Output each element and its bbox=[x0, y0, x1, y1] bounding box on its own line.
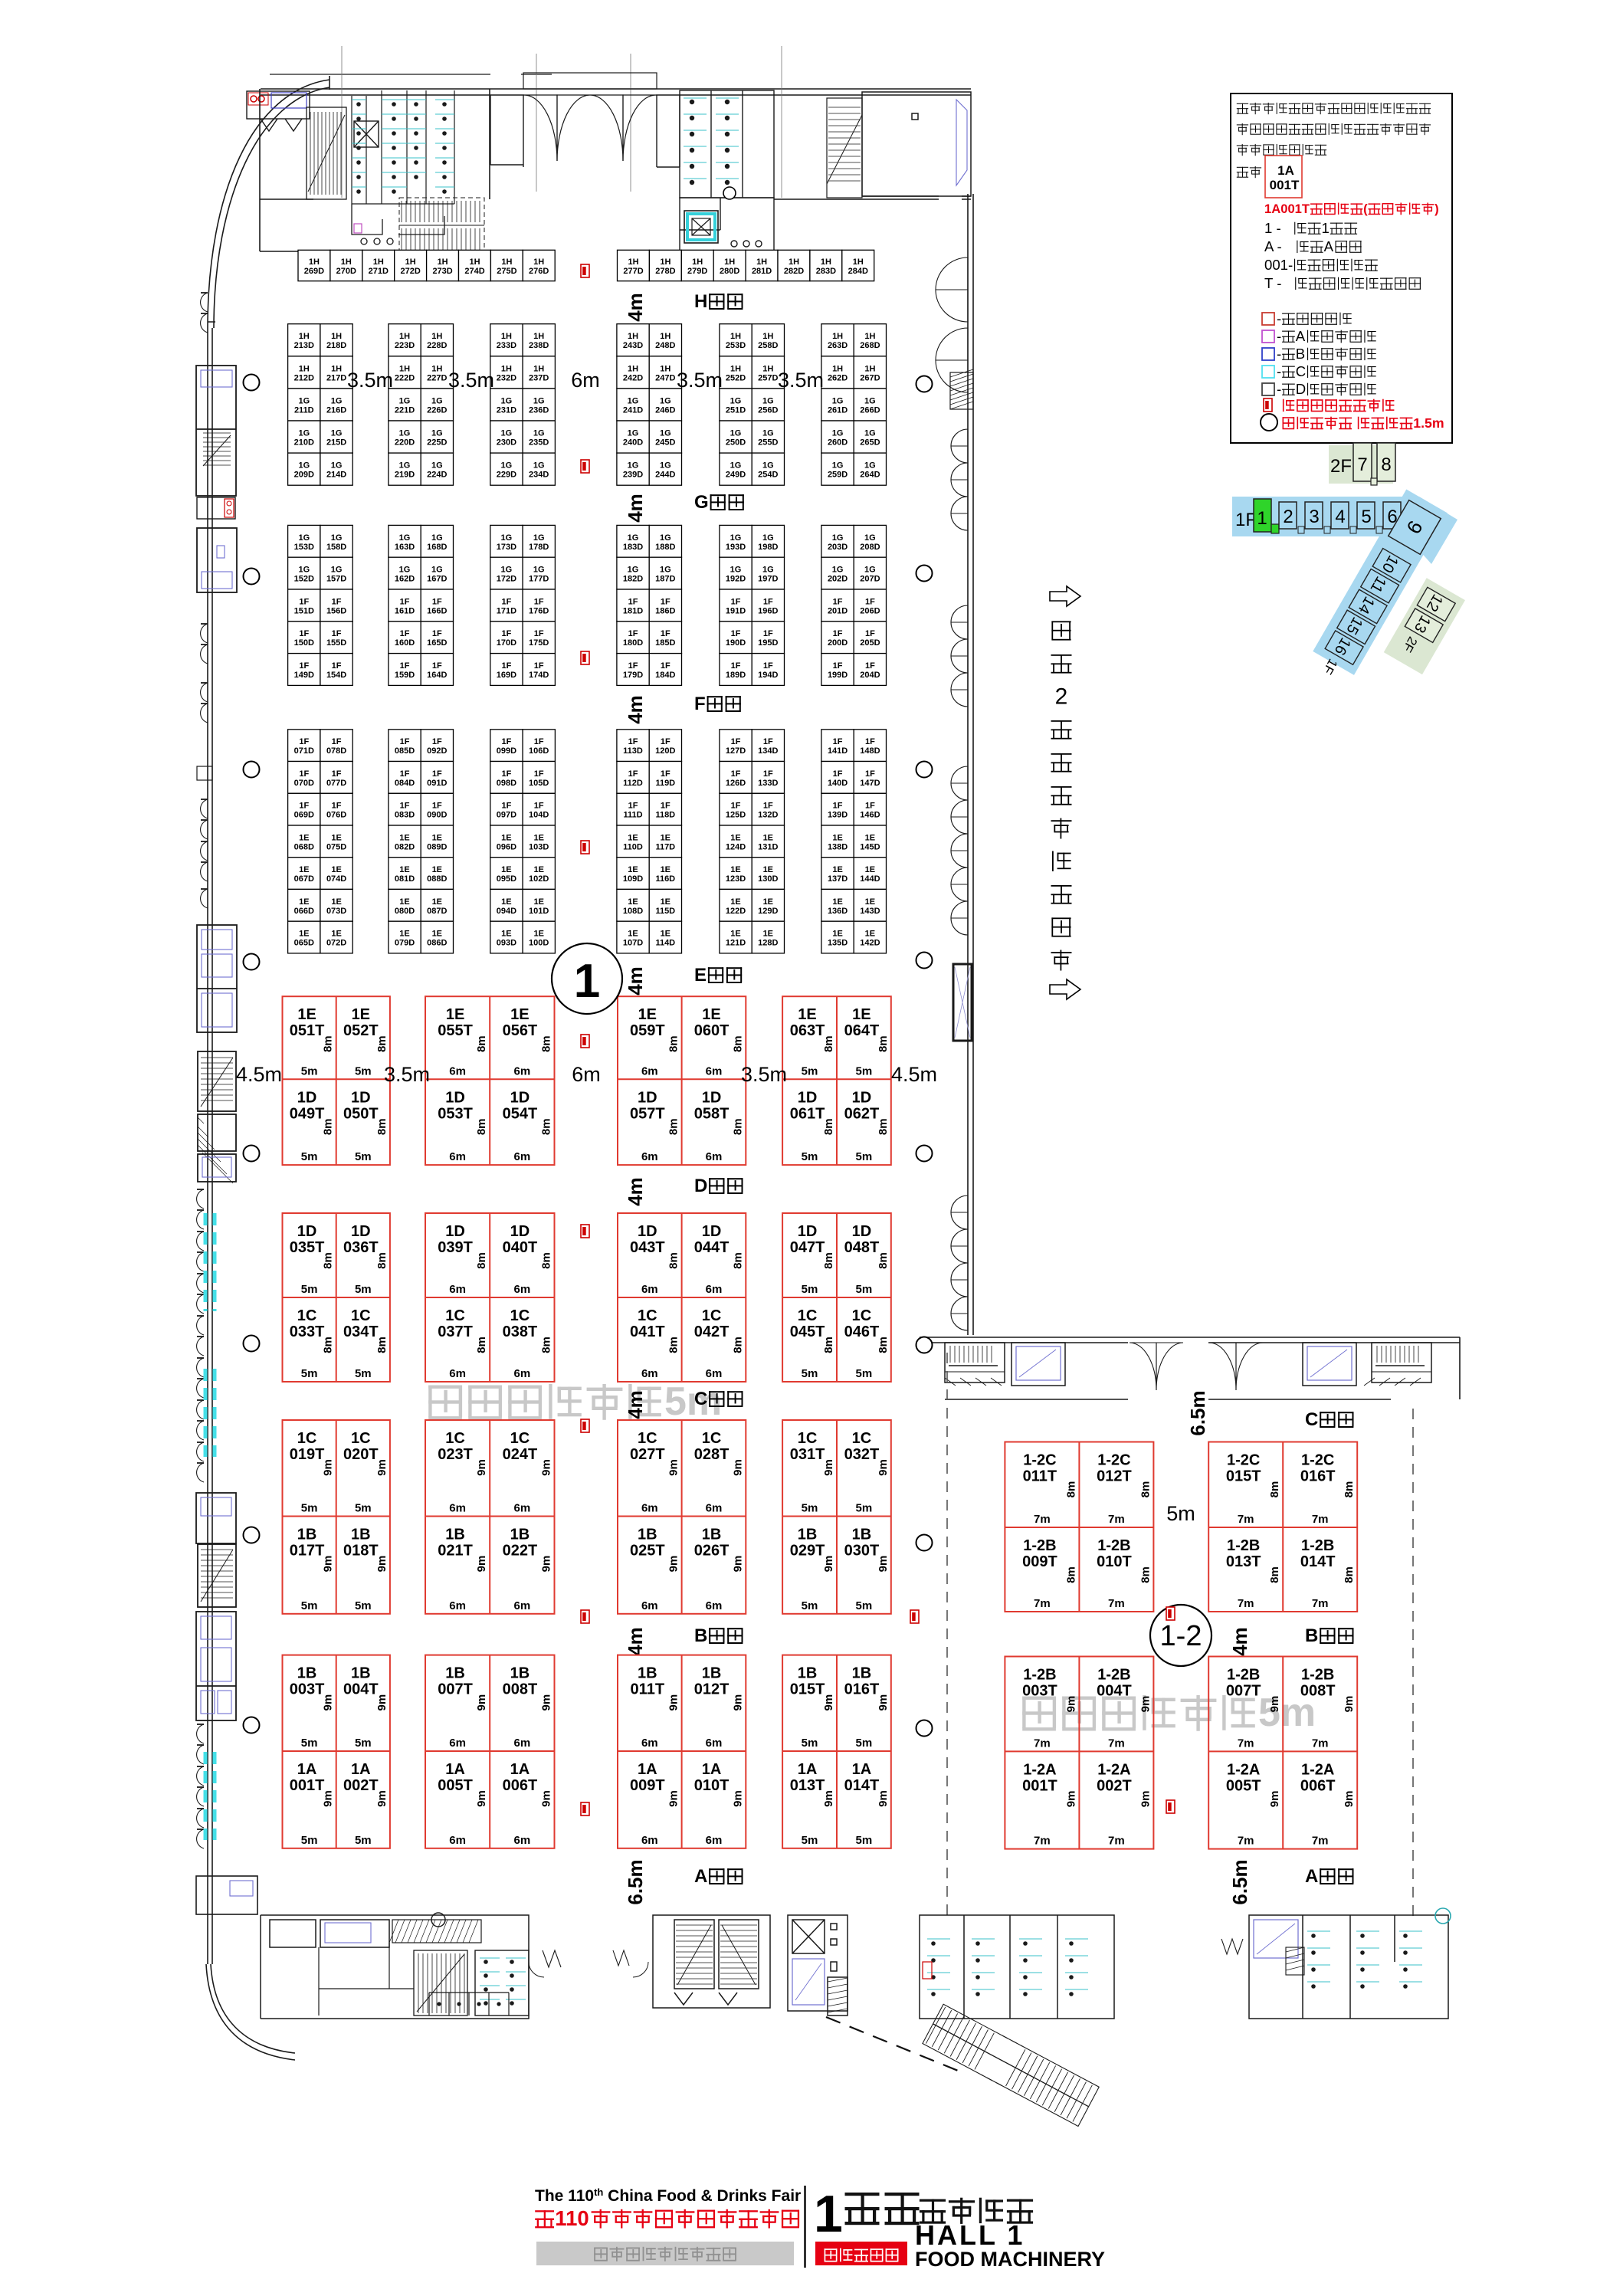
svg-text:217D: 217D bbox=[326, 373, 346, 382]
svg-text:224D: 224D bbox=[427, 471, 447, 480]
svg-text:8m: 8m bbox=[1268, 1481, 1281, 1498]
svg-text:1A: 1A bbox=[510, 1761, 530, 1778]
svg-text:1G: 1G bbox=[331, 429, 343, 438]
svg-text:7m: 7m bbox=[1238, 1597, 1254, 1610]
svg-text:C: C bbox=[1305, 1409, 1318, 1430]
svg-text:1F: 1F bbox=[534, 769, 544, 779]
svg-text:020T: 020T bbox=[343, 1446, 379, 1463]
svg-text:6m: 6m bbox=[706, 1834, 723, 1847]
svg-text:272D: 272D bbox=[401, 267, 421, 276]
svg-text:1E: 1E bbox=[832, 833, 842, 842]
svg-text:1F: 1F bbox=[332, 661, 342, 671]
svg-text:G: G bbox=[694, 492, 709, 513]
svg-text:7m: 7m bbox=[1312, 1597, 1329, 1610]
svg-text:1F: 1F bbox=[833, 661, 843, 671]
svg-text:1F: 1F bbox=[400, 737, 410, 746]
svg-text:1D: 1D bbox=[852, 1223, 872, 1240]
svg-text:058T: 058T bbox=[694, 1105, 730, 1122]
svg-text:1H: 1H bbox=[341, 257, 352, 267]
svg-text:8m: 8m bbox=[731, 1035, 744, 1052]
svg-text:1G: 1G bbox=[431, 533, 443, 543]
svg-text:203D: 203D bbox=[828, 543, 848, 552]
svg-text:1A001T: 1A001T bbox=[1264, 202, 1310, 216]
svg-text:D: D bbox=[694, 1176, 707, 1196]
svg-text:076D: 076D bbox=[326, 811, 346, 820]
svg-text:1B: 1B bbox=[297, 1665, 317, 1682]
svg-text:231D: 231D bbox=[497, 405, 516, 415]
svg-text:6m: 6m bbox=[641, 1367, 658, 1380]
svg-text:052T: 052T bbox=[343, 1022, 379, 1039]
svg-text:180D: 180D bbox=[623, 638, 643, 648]
svg-text:-: - bbox=[1277, 310, 1281, 326]
svg-text:244D: 244D bbox=[655, 471, 675, 480]
svg-text:1E: 1E bbox=[352, 1006, 370, 1023]
svg-text:1-2: 1-2 bbox=[1160, 1620, 1202, 1652]
svg-text:1G: 1G bbox=[660, 533, 671, 543]
svg-text:1D: 1D bbox=[510, 1223, 530, 1240]
svg-text:1F: 1F bbox=[661, 597, 671, 606]
svg-text:1H: 1H bbox=[832, 332, 843, 341]
svg-text:1G: 1G bbox=[331, 396, 343, 405]
svg-text:1A: 1A bbox=[702, 1761, 722, 1778]
svg-text:077D: 077D bbox=[326, 779, 346, 788]
svg-text:6m: 6m bbox=[641, 1502, 658, 1515]
svg-text:150D: 150D bbox=[294, 638, 314, 648]
svg-text:154D: 154D bbox=[326, 671, 346, 680]
svg-text:106D: 106D bbox=[529, 746, 549, 756]
svg-text:1H: 1H bbox=[832, 364, 843, 373]
svg-text:8m: 8m bbox=[822, 1252, 835, 1269]
svg-text:1G: 1G bbox=[533, 461, 545, 471]
svg-text:1H: 1H bbox=[501, 257, 512, 267]
svg-text:1E: 1E bbox=[399, 865, 409, 874]
svg-text:1G: 1G bbox=[431, 429, 443, 438]
svg-text:268D: 268D bbox=[860, 341, 880, 350]
svg-text:1F: 1F bbox=[628, 661, 638, 671]
svg-text:1E: 1E bbox=[730, 897, 740, 907]
svg-text:214D: 214D bbox=[326, 471, 346, 480]
svg-text:1F: 1F bbox=[763, 737, 773, 746]
svg-text:HALL 1: HALL 1 bbox=[915, 2219, 1025, 2251]
svg-text:1A: 1A bbox=[1277, 163, 1294, 178]
svg-text:5m: 5m bbox=[355, 1737, 372, 1750]
svg-text:200D: 200D bbox=[828, 638, 848, 648]
svg-text:3.5m: 3.5m bbox=[448, 369, 494, 392]
svg-text:216D: 216D bbox=[326, 405, 346, 415]
svg-text:4m: 4m bbox=[624, 1627, 647, 1656]
svg-text:6m: 6m bbox=[514, 1502, 531, 1515]
svg-text:014T: 014T bbox=[844, 1777, 880, 1794]
svg-text:8m: 8m bbox=[322, 1035, 335, 1052]
svg-text:4m: 4m bbox=[624, 966, 647, 995]
svg-text:1-2C: 1-2C bbox=[1301, 1452, 1334, 1469]
svg-text:A -: A - bbox=[1264, 238, 1282, 254]
svg-text:8m: 8m bbox=[322, 1118, 335, 1135]
svg-text:1C: 1C bbox=[510, 1307, 530, 1324]
svg-text:B: B bbox=[694, 1625, 707, 1646]
svg-text:068D: 068D bbox=[294, 842, 314, 851]
svg-text:209D: 209D bbox=[294, 471, 314, 480]
svg-text:075D: 075D bbox=[326, 842, 346, 851]
svg-text:1E: 1E bbox=[299, 833, 309, 842]
svg-text:1G: 1G bbox=[628, 461, 639, 471]
svg-text:1F: 1F bbox=[628, 737, 638, 746]
svg-text:1E: 1E bbox=[763, 865, 773, 874]
svg-text:8m: 8m bbox=[731, 1337, 744, 1353]
svg-text:140D: 140D bbox=[828, 779, 848, 788]
svg-text:1H: 1H bbox=[724, 257, 735, 267]
svg-text:1G: 1G bbox=[730, 429, 742, 438]
svg-text:1H: 1H bbox=[864, 364, 875, 373]
svg-text:5m: 5m bbox=[355, 1599, 372, 1612]
svg-text:165D: 165D bbox=[427, 638, 447, 648]
svg-text:163D: 163D bbox=[395, 543, 415, 552]
svg-text:1F: 1F bbox=[534, 597, 544, 606]
svg-text:234D: 234D bbox=[529, 471, 549, 480]
svg-text:4m: 4m bbox=[624, 293, 647, 322]
svg-text:1E: 1E bbox=[865, 897, 875, 907]
svg-text:158D: 158D bbox=[326, 543, 346, 552]
svg-text:1E: 1E bbox=[510, 1006, 529, 1023]
svg-text:8m: 8m bbox=[1139, 1481, 1152, 1498]
svg-text:239D: 239D bbox=[623, 471, 643, 480]
svg-text:8m: 8m bbox=[877, 1035, 890, 1052]
svg-text:013T: 013T bbox=[1226, 1553, 1261, 1570]
svg-text:1H: 1H bbox=[660, 332, 671, 341]
svg-text:1E: 1E bbox=[331, 930, 341, 939]
svg-text:002T: 002T bbox=[1097, 1777, 1132, 1794]
svg-text:7m: 7m bbox=[1238, 1737, 1254, 1750]
svg-text:8m: 8m bbox=[475, 1118, 488, 1135]
svg-text:1H: 1H bbox=[299, 364, 310, 373]
svg-text:111D: 111D bbox=[623, 811, 642, 820]
svg-text:9m: 9m bbox=[1064, 1791, 1077, 1808]
svg-text:1F: 1F bbox=[432, 769, 442, 779]
svg-text:1D: 1D bbox=[351, 1089, 371, 1106]
svg-text:029T: 029T bbox=[790, 1543, 825, 1560]
svg-text:1F: 1F bbox=[299, 802, 309, 811]
svg-text:262D: 262D bbox=[828, 373, 848, 382]
svg-text:129D: 129D bbox=[758, 907, 778, 916]
svg-text:024T: 024T bbox=[503, 1446, 538, 1463]
svg-text:1E: 1E bbox=[331, 865, 341, 874]
svg-text:042T: 042T bbox=[694, 1323, 730, 1340]
svg-text:069D: 069D bbox=[294, 811, 314, 820]
svg-text:6m: 6m bbox=[706, 1737, 723, 1750]
svg-text:036T: 036T bbox=[343, 1239, 379, 1256]
svg-text:001T: 001T bbox=[290, 1777, 325, 1794]
svg-text:1B: 1B bbox=[510, 1665, 530, 1682]
svg-text:8: 8 bbox=[1381, 454, 1391, 475]
svg-text:172D: 172D bbox=[497, 575, 516, 584]
svg-text:6m: 6m bbox=[706, 1150, 723, 1163]
svg-text:110: 110 bbox=[555, 2206, 589, 2230]
svg-text:1G: 1G bbox=[832, 566, 844, 575]
svg-text:8m: 8m bbox=[1343, 1481, 1356, 1498]
svg-text:7m: 7m bbox=[1034, 1835, 1051, 1848]
svg-text:1E: 1E bbox=[865, 833, 875, 842]
svg-text:6m: 6m bbox=[449, 1064, 466, 1077]
svg-text:1B: 1B bbox=[510, 1527, 530, 1543]
svg-text:032T: 032T bbox=[844, 1446, 880, 1463]
svg-text:095D: 095D bbox=[497, 874, 516, 884]
svg-text:5m: 5m bbox=[1166, 1502, 1195, 1525]
svg-text:1F: 1F bbox=[865, 661, 875, 671]
svg-text:261D: 261D bbox=[828, 405, 848, 415]
svg-text:4.5m: 4.5m bbox=[236, 1063, 282, 1086]
svg-text:098D: 098D bbox=[497, 779, 516, 788]
svg-text:1D: 1D bbox=[798, 1089, 818, 1106]
svg-text:004T: 004T bbox=[1097, 1683, 1132, 1700]
svg-text:049T: 049T bbox=[290, 1105, 325, 1122]
svg-text:5m: 5m bbox=[802, 1283, 818, 1296]
svg-text:1-2C: 1-2C bbox=[1227, 1452, 1260, 1469]
svg-text:130D: 130D bbox=[758, 874, 778, 884]
svg-text:037T: 037T bbox=[438, 1323, 473, 1340]
svg-text:1C: 1C bbox=[798, 1430, 818, 1447]
svg-text:149D: 149D bbox=[294, 671, 314, 680]
svg-text:1B: 1B bbox=[702, 1527, 722, 1543]
svg-text:1B: 1B bbox=[351, 1665, 371, 1682]
svg-text:177D: 177D bbox=[529, 575, 549, 584]
svg-text:1G: 1G bbox=[331, 533, 343, 543]
svg-text:144D: 144D bbox=[860, 874, 880, 884]
svg-text:8m: 8m bbox=[322, 1337, 335, 1353]
svg-text:1H: 1H bbox=[762, 364, 773, 373]
svg-text:1F: 1F bbox=[628, 802, 638, 811]
svg-text:192D: 192D bbox=[726, 575, 746, 584]
svg-text:8m: 8m bbox=[322, 1252, 335, 1269]
svg-text:1E: 1E bbox=[661, 865, 671, 874]
svg-text:242D: 242D bbox=[623, 373, 643, 382]
svg-text:1E: 1E bbox=[331, 833, 341, 842]
svg-text:071D: 071D bbox=[294, 746, 314, 756]
svg-text:1F: 1F bbox=[432, 802, 442, 811]
svg-text:4m: 4m bbox=[624, 1177, 647, 1206]
svg-text:050T: 050T bbox=[343, 1105, 379, 1122]
svg-text:079D: 079D bbox=[395, 939, 415, 948]
svg-text:1C: 1C bbox=[702, 1307, 722, 1324]
svg-text:1E: 1E bbox=[501, 865, 511, 874]
svg-text:142D: 142D bbox=[860, 939, 880, 948]
svg-text:-: - bbox=[1277, 346, 1281, 362]
svg-text:168D: 168D bbox=[427, 543, 447, 552]
svg-text:1F: 1F bbox=[628, 597, 638, 606]
svg-text:5m: 5m bbox=[802, 1599, 818, 1612]
svg-text:1H: 1H bbox=[730, 332, 741, 341]
svg-text:8m: 8m bbox=[540, 1337, 553, 1353]
svg-text:1F: 1F bbox=[833, 629, 843, 638]
svg-text:1B: 1B bbox=[445, 1665, 465, 1682]
svg-text:1F: 1F bbox=[400, 597, 410, 606]
svg-text:1G: 1G bbox=[762, 566, 774, 575]
svg-text:103D: 103D bbox=[529, 842, 549, 851]
svg-text:235D: 235D bbox=[529, 438, 549, 448]
svg-text:9m: 9m bbox=[1268, 1791, 1281, 1808]
svg-text:137D: 137D bbox=[828, 874, 848, 884]
svg-text:1G: 1G bbox=[399, 396, 411, 405]
svg-text:247D: 247D bbox=[655, 373, 675, 382]
svg-text:1G: 1G bbox=[298, 429, 310, 438]
svg-text:6m: 6m bbox=[514, 1367, 531, 1380]
svg-text:1G: 1G bbox=[331, 461, 343, 471]
svg-text:021T: 021T bbox=[438, 1543, 473, 1560]
svg-text:274D: 274D bbox=[464, 267, 484, 276]
svg-text:254D: 254D bbox=[758, 471, 778, 480]
svg-text:284D: 284D bbox=[848, 267, 868, 276]
svg-text:1D: 1D bbox=[351, 1223, 371, 1240]
svg-text:188D: 188D bbox=[655, 543, 675, 552]
svg-text:1F: 1F bbox=[731, 769, 741, 779]
svg-text:1G: 1G bbox=[399, 429, 411, 438]
svg-text:1E: 1E bbox=[763, 833, 773, 842]
svg-text:044T: 044T bbox=[694, 1239, 730, 1256]
svg-text:057T: 057T bbox=[630, 1105, 665, 1122]
svg-text:6.5m: 6.5m bbox=[624, 1859, 647, 1904]
svg-text:9m: 9m bbox=[877, 1694, 890, 1711]
svg-text:1E: 1E bbox=[730, 865, 740, 874]
svg-text:C: C bbox=[694, 1389, 707, 1409]
svg-text:7m: 7m bbox=[1034, 1513, 1051, 1526]
svg-text:9m: 9m bbox=[667, 1694, 680, 1711]
svg-text:204D: 204D bbox=[860, 671, 880, 680]
svg-text:096D: 096D bbox=[497, 842, 516, 851]
svg-text:147D: 147D bbox=[860, 779, 880, 788]
svg-text:9m: 9m bbox=[1268, 1696, 1281, 1713]
svg-text:159D: 159D bbox=[395, 671, 415, 680]
svg-text:1C: 1C bbox=[638, 1430, 657, 1447]
svg-text:2: 2 bbox=[1283, 507, 1293, 527]
svg-text:1H: 1H bbox=[628, 332, 638, 341]
svg-text:1 -: 1 - bbox=[1264, 220, 1281, 236]
svg-text:175D: 175D bbox=[529, 638, 549, 648]
svg-text:(: ( bbox=[1363, 202, 1368, 216]
svg-text:9m: 9m bbox=[731, 1556, 744, 1573]
svg-text:6.5m: 6.5m bbox=[1228, 1859, 1251, 1904]
svg-text:010T: 010T bbox=[694, 1777, 730, 1794]
svg-text:1F: 1F bbox=[332, 737, 342, 746]
svg-text:1G: 1G bbox=[331, 566, 343, 575]
svg-text:1D: 1D bbox=[297, 1089, 317, 1106]
svg-text:116D: 116D bbox=[655, 874, 675, 884]
svg-text:9m: 9m bbox=[1139, 1696, 1152, 1713]
svg-text:8m: 8m bbox=[1139, 1566, 1152, 1583]
svg-text:232D: 232D bbox=[497, 373, 516, 382]
svg-text:1F: 1F bbox=[432, 661, 442, 671]
svg-text:1E: 1E bbox=[399, 897, 409, 907]
svg-text:1G: 1G bbox=[533, 396, 545, 405]
svg-text:1B: 1B bbox=[638, 1665, 657, 1682]
svg-text:1D: 1D bbox=[297, 1223, 317, 1240]
svg-text:1C: 1C bbox=[852, 1430, 872, 1447]
svg-text:267D: 267D bbox=[860, 373, 880, 382]
svg-text:1F: 1F bbox=[534, 629, 544, 638]
svg-text:1C: 1C bbox=[351, 1307, 371, 1324]
svg-text:1F: 1F bbox=[534, 737, 544, 746]
svg-text:1F: 1F bbox=[661, 661, 671, 671]
svg-text:125D: 125D bbox=[726, 811, 746, 820]
svg-text:5m: 5m bbox=[355, 1834, 372, 1847]
svg-text:228D: 228D bbox=[427, 341, 447, 350]
svg-text:056T: 056T bbox=[503, 1022, 538, 1039]
svg-text:1G: 1G bbox=[501, 396, 513, 405]
svg-text:151D: 151D bbox=[294, 606, 314, 615]
svg-text:1H: 1H bbox=[864, 332, 875, 341]
svg-text:1G: 1G bbox=[501, 533, 513, 543]
svg-text:1G: 1G bbox=[533, 533, 545, 543]
svg-text:039T: 039T bbox=[438, 1239, 473, 1256]
svg-text:015T: 015T bbox=[1226, 1468, 1261, 1485]
svg-text:1C: 1C bbox=[297, 1430, 317, 1447]
svg-text:1D: 1D bbox=[702, 1089, 722, 1106]
svg-text:008T: 008T bbox=[1300, 1683, 1336, 1700]
svg-text:1H: 1H bbox=[438, 257, 448, 267]
svg-text:1D: 1D bbox=[638, 1223, 657, 1240]
svg-text:9m: 9m bbox=[540, 1556, 553, 1573]
svg-text:187D: 187D bbox=[655, 575, 675, 584]
svg-text:1G: 1G bbox=[399, 533, 411, 543]
svg-text:094D: 094D bbox=[497, 907, 516, 916]
svg-text:1E: 1E bbox=[501, 930, 511, 939]
svg-text:141D: 141D bbox=[828, 746, 848, 756]
svg-text:1G: 1G bbox=[298, 461, 310, 471]
svg-text:1F: 1F bbox=[865, 802, 875, 811]
svg-text:5m: 5m bbox=[301, 1150, 318, 1163]
svg-text:1-2C: 1-2C bbox=[1097, 1452, 1130, 1469]
svg-text:081D: 081D bbox=[395, 874, 415, 884]
svg-text:146D: 146D bbox=[860, 811, 880, 820]
svg-text:135D: 135D bbox=[828, 939, 848, 948]
svg-text:156D: 156D bbox=[326, 606, 346, 615]
svg-text:9m: 9m bbox=[375, 1459, 389, 1476]
svg-text:1E: 1E bbox=[702, 1006, 720, 1023]
svg-text:043T: 043T bbox=[630, 1239, 665, 1256]
svg-text:1D: 1D bbox=[445, 1223, 465, 1240]
svg-text:233D: 233D bbox=[497, 341, 516, 350]
svg-text:215D: 215D bbox=[326, 438, 346, 448]
svg-text:1G: 1G bbox=[832, 461, 844, 471]
svg-text:198D: 198D bbox=[758, 543, 778, 552]
svg-text:5m: 5m bbox=[802, 1064, 818, 1077]
svg-text:1F: 1F bbox=[432, 629, 442, 638]
svg-text:9m: 9m bbox=[322, 1556, 335, 1573]
svg-text:183D: 183D bbox=[623, 543, 643, 552]
svg-text:6m: 6m bbox=[641, 1064, 658, 1077]
svg-text:041T: 041T bbox=[630, 1323, 665, 1340]
svg-text:283D: 283D bbox=[816, 267, 836, 276]
svg-text:1G: 1G bbox=[730, 396, 742, 405]
svg-text:072D: 072D bbox=[326, 939, 346, 948]
svg-text:048T: 048T bbox=[844, 1239, 880, 1256]
svg-text:001T: 001T bbox=[1270, 178, 1300, 192]
svg-text:064T: 064T bbox=[844, 1022, 880, 1039]
svg-text:4m: 4m bbox=[624, 695, 647, 724]
svg-text:1H: 1H bbox=[533, 257, 544, 267]
svg-text:1G: 1G bbox=[298, 533, 310, 543]
svg-text:034T: 034T bbox=[343, 1323, 379, 1340]
svg-text:8m: 8m bbox=[1268, 1566, 1281, 1583]
svg-text:6m: 6m bbox=[514, 1834, 531, 1847]
svg-text:1F: 1F bbox=[661, 769, 671, 779]
svg-text:012T: 012T bbox=[694, 1681, 730, 1698]
svg-text:8m: 8m bbox=[822, 1337, 835, 1353]
svg-text:1H: 1H bbox=[399, 332, 410, 341]
svg-text:1-2A: 1-2A bbox=[1227, 1761, 1260, 1778]
svg-text:8m: 8m bbox=[822, 1035, 835, 1052]
svg-text:1E: 1E bbox=[432, 865, 442, 874]
svg-text:1F: 1F bbox=[534, 661, 544, 671]
svg-text:7m: 7m bbox=[1312, 1835, 1329, 1848]
